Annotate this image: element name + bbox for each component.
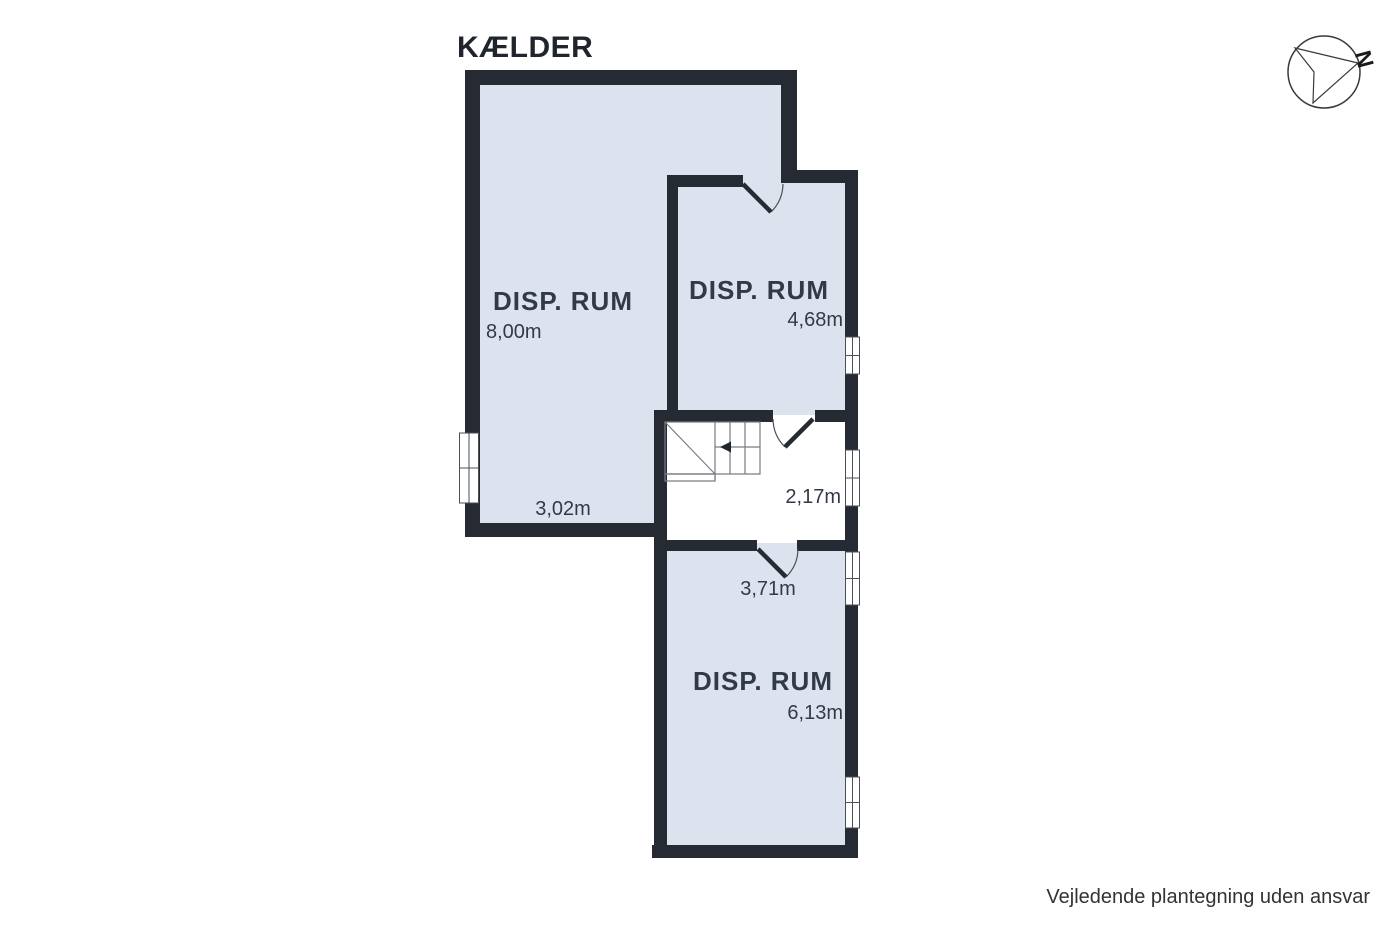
wall xyxy=(815,410,845,422)
window xyxy=(846,337,860,374)
window xyxy=(460,433,479,503)
wall xyxy=(667,410,773,422)
disclaimer-text: Vejledende plantegning uden ansvar xyxy=(1046,887,1370,908)
room-large-length: 8,00m xyxy=(486,322,542,343)
wall xyxy=(781,70,797,177)
room-bottom-length: 6,13m xyxy=(693,703,843,724)
wall xyxy=(797,540,852,551)
room-bottom-width: 3,71m xyxy=(693,579,843,600)
window xyxy=(846,552,860,605)
window xyxy=(846,777,860,828)
wall xyxy=(667,175,743,187)
compass-icon xyxy=(1288,36,1360,108)
room-bottom-label: DISP. RUM xyxy=(676,668,850,695)
window xyxy=(846,450,860,506)
stair-hall-fill xyxy=(660,415,852,545)
room-large-width: 3,02m xyxy=(463,499,663,520)
floor-plan xyxy=(0,0,1400,933)
room-large-label: DISP. RUM xyxy=(463,288,663,315)
wall xyxy=(465,523,667,537)
wall xyxy=(660,540,757,551)
wall xyxy=(465,70,797,85)
wall xyxy=(845,170,858,858)
page-title: KÆLDER xyxy=(457,32,593,64)
room-top-right-label: DISP. RUM xyxy=(672,277,846,304)
room-top-right-length: 4,68m xyxy=(693,310,843,331)
wall xyxy=(652,845,858,858)
stair-hall-width: 2,17m xyxy=(691,487,841,508)
